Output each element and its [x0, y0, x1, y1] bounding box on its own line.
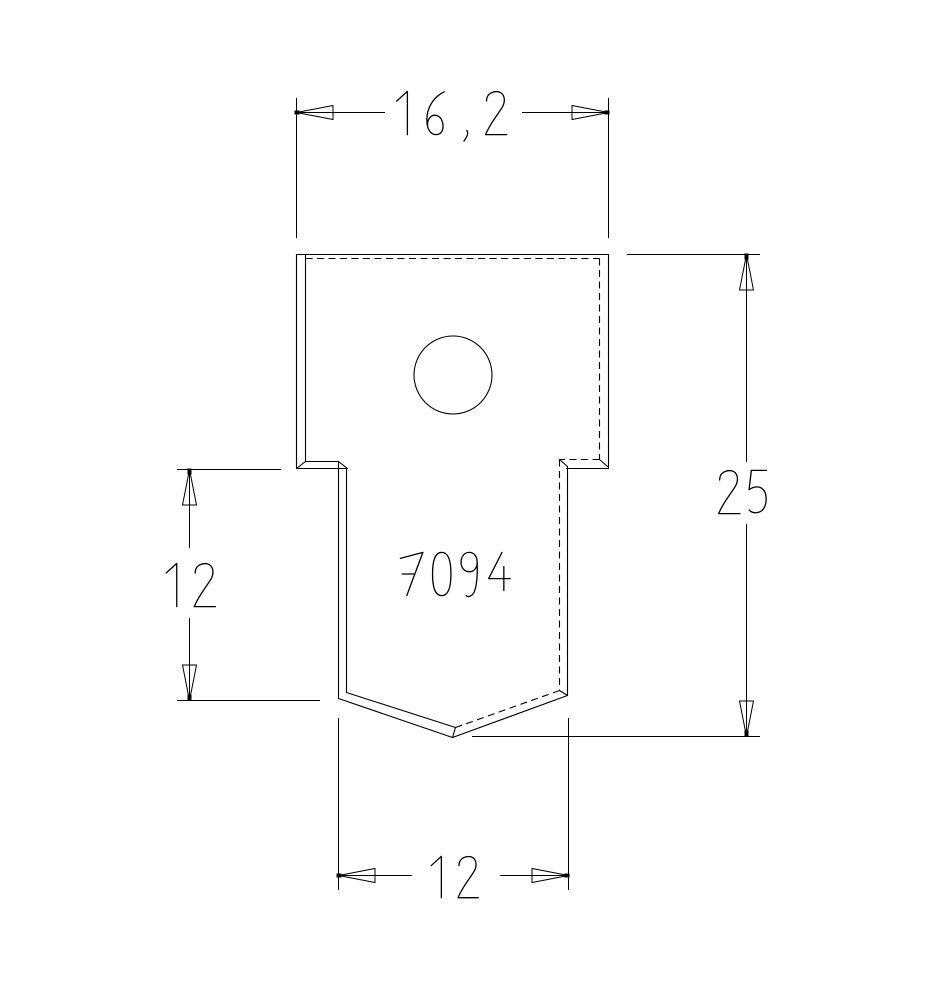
dim-overall-height-label — [719, 470, 767, 513]
part-view — [297, 255, 609, 738]
dim-top-width-label — [397, 91, 507, 141]
dim-tab-width-extension-lines — [339, 718, 569, 890]
dim-top-width-tip-left — [295, 111, 300, 115]
dim-overall-height — [472, 254, 767, 737]
dim-tab-length — [166, 469, 320, 701]
dim-top-width-extension-lines — [297, 98, 609, 238]
dim-overall-height-tip-top — [745, 254, 749, 260]
part-hidden-edges-dashed — [306, 259, 600, 728]
dim-overall-height-tip-bottom — [745, 731, 749, 737]
dim-tab-length-extension-lines — [177, 470, 320, 701]
part-outline-solid-edges — [297, 255, 609, 738]
dim-top-width — [295, 91, 610, 238]
dim-tab-width — [337, 718, 570, 898]
dim-tab-length-label — [166, 563, 215, 606]
dim-tab-width-label — [431, 856, 478, 897]
technical-drawing — [0, 0, 946, 996]
part-number-label — [400, 552, 510, 596]
dim-tab-width-tip-left — [337, 874, 342, 878]
dim-overall-height-extension-lines — [472, 255, 760, 737]
dim-top-width-tip-right — [605, 111, 610, 115]
dim-tab-length-tip-bottom — [188, 695, 192, 701]
dim-tab-length-tip-top — [188, 469, 192, 475]
mounting-hole — [414, 336, 492, 414]
dim-tab-width-tip-right — [565, 874, 570, 878]
drawing-canvas — [0, 0, 946, 996]
